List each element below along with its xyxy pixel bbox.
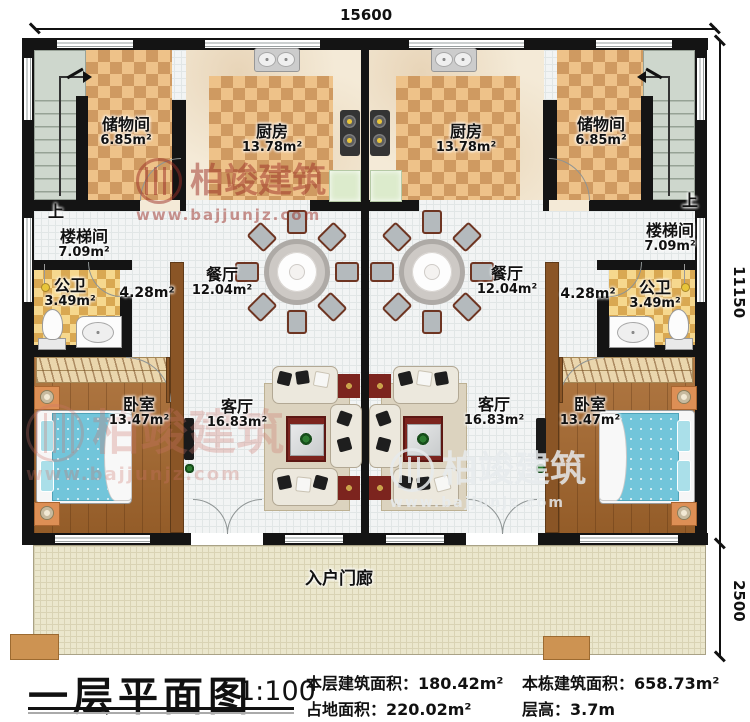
stat-land-area: 占地面积：220.02m²: [306, 696, 471, 720]
watermark-url: www.bajjunjz.com: [390, 496, 586, 510]
lamp-icon: [677, 506, 691, 520]
porch-floor: [33, 545, 706, 655]
room-label-storage-right: 储物间 6.85m²: [575, 116, 626, 148]
plant-icon: [416, 432, 430, 446]
room-label-bathroom-left: 公卫 3.49m²: [44, 277, 95, 309]
stove-burner: [373, 134, 386, 147]
room-label-dining-left: 餐厅 12.04m²: [192, 266, 252, 298]
stair-arrowhead-right: [637, 71, 646, 83]
room-label-living-right: 客厅 16.83m²: [464, 396, 524, 428]
bath-light-cord-right: [684, 264, 685, 284]
bath-sink-right: [617, 322, 649, 343]
window-bottom-bedroom-left: [55, 535, 150, 543]
room-label-bathroom-right: 公卫 3.49m²: [629, 279, 680, 311]
dining-chair: [422, 310, 442, 334]
area-label-hall-right: 4.28m²: [560, 287, 615, 302]
sofa-cushion: [416, 370, 433, 387]
watermark-right: 柏竣建筑 www.bajjunjz.com: [390, 448, 586, 510]
fridge-right: [370, 170, 402, 202]
wall-stair-storage-right: [641, 96, 653, 211]
wall-center-party: [361, 50, 369, 533]
dimension-top-value: 15600: [340, 6, 392, 24]
sofa-cushion: [434, 371, 449, 386]
corner-mat: [369, 476, 391, 500]
plant-icon: [299, 432, 313, 446]
storage-door-opening-right: [549, 200, 589, 211]
brand-logo-icon: [26, 404, 84, 462]
fridge-left: [329, 170, 361, 202]
lamp-icon: [677, 390, 691, 404]
watermark-brand: 柏竣建筑: [442, 452, 586, 488]
dining-chair: [370, 262, 394, 282]
window-bottom-living-left: [285, 535, 343, 543]
sofa-cushion: [313, 371, 330, 388]
watermark-brand: 柏竣建筑: [190, 164, 326, 198]
room-label-stairwell-left: 楼梯间 7.09m²: [58, 228, 109, 260]
sink-basin: [258, 52, 276, 67]
dimension-right-lower-value: 2500: [730, 580, 748, 622]
toilet-bowl-right: [668, 309, 689, 340]
window-bottom-bedroom-right: [580, 535, 678, 543]
window-left-2: [24, 218, 32, 302]
window-right-1: [697, 58, 705, 120]
stair-arrow-line-right: [668, 76, 670, 196]
dimension-line-top: [35, 28, 717, 30]
wall-top-center: [327, 38, 405, 50]
room-label-kitchen-right: 厨房 13.78m²: [436, 123, 496, 155]
stove-burner: [373, 115, 386, 128]
window-bottom-living-right: [386, 535, 444, 543]
wall-stair-storage-left: [76, 96, 88, 211]
window-top-left-1: [57, 40, 133, 48]
watermark-url: www.bajjunjz.com: [26, 466, 284, 484]
wall-bedroom-living-left: [170, 262, 184, 533]
window-left-1: [24, 58, 32, 120]
lamp-icon: [40, 390, 54, 404]
room-label-porch: 入户门廊: [305, 570, 373, 589]
room-label-bedroom-right: 卧室 13.47m²: [560, 396, 620, 428]
dining-chair: [422, 210, 442, 234]
pillow: [677, 460, 691, 492]
sink-basin: [454, 52, 472, 67]
sofa-cushion: [295, 370, 310, 385]
lamp-icon: [40, 506, 54, 520]
bath-light-right: [681, 283, 690, 292]
dining-chair: [335, 262, 359, 282]
brand-logo-icon: [136, 158, 182, 204]
dimension-right-upper-value: 11150: [730, 266, 748, 318]
brand-logo-icon: [390, 448, 434, 492]
porch-step-left: [10, 634, 59, 660]
corner-mat: [338, 374, 360, 398]
stair-arrow-line-left: [59, 76, 61, 196]
dining-table-left: [264, 239, 330, 305]
sofa-cushion: [295, 476, 311, 492]
porch-step-right: [543, 636, 590, 660]
stair-up-label-right: 上: [682, 192, 698, 210]
dining-chair: [287, 310, 307, 334]
sink-basin: [277, 52, 295, 67]
entry-opening-right: [466, 533, 538, 545]
table-center: [424, 264, 440, 280]
area-label-hall-left: 4.28m²: [119, 286, 174, 301]
corner-mat: [369, 374, 391, 398]
dimension-line-right: [719, 40, 721, 658]
table-center: [289, 264, 305, 280]
room-label-bedroom-left: 卧室 13.47m²: [109, 396, 169, 428]
corner-mat: [338, 476, 360, 500]
room-label-dining-right: 餐厅 12.04m²: [477, 265, 537, 297]
stat-floor-area: 本层建筑面积：180.42m²: [306, 670, 503, 694]
room-label-stairwell-right: 楼梯间 7.09m²: [644, 222, 695, 254]
bath-sink-left: [82, 322, 114, 343]
toilet-bowl-left: [42, 309, 63, 340]
room-label-kitchen-left: 厨房 13.78m²: [242, 123, 302, 155]
window-top-right-2: [596, 40, 672, 48]
watermark-center: 柏竣建筑 www.bajjunjz.com: [136, 158, 326, 223]
window-top-left-2: [205, 40, 320, 48]
room-label-living-left: 客厅 16.83m²: [207, 398, 267, 430]
dining-table-right: [399, 239, 465, 305]
stat-building-area: 本栋建筑面积：658.73m²: [522, 670, 719, 694]
window-top-right-1: [409, 40, 524, 48]
stat-floor-height: 层高：3.7m: [522, 696, 615, 720]
floor-plan-canvas: 柏竣建筑 www.bajjunjz.com 柏竣建筑 www.bajjunjz.…: [0, 0, 750, 722]
pillow: [677, 420, 691, 452]
room-label-storage-left: 储物间 6.85m²: [100, 116, 151, 148]
stair-up-label-left: 上: [48, 203, 64, 221]
entry-opening-left: [191, 533, 263, 545]
stove-burner: [343, 134, 356, 147]
stove-burner: [343, 115, 356, 128]
stair-arrowhead-left: [83, 71, 92, 83]
plan-scale: 1:100: [238, 676, 316, 707]
watermark-url: www.bajjunjz.com: [136, 208, 326, 223]
title-underline-2: [28, 712, 294, 714]
window-right-2: [697, 218, 705, 302]
title-underline: [28, 707, 294, 710]
sink-basin: [435, 52, 453, 67]
